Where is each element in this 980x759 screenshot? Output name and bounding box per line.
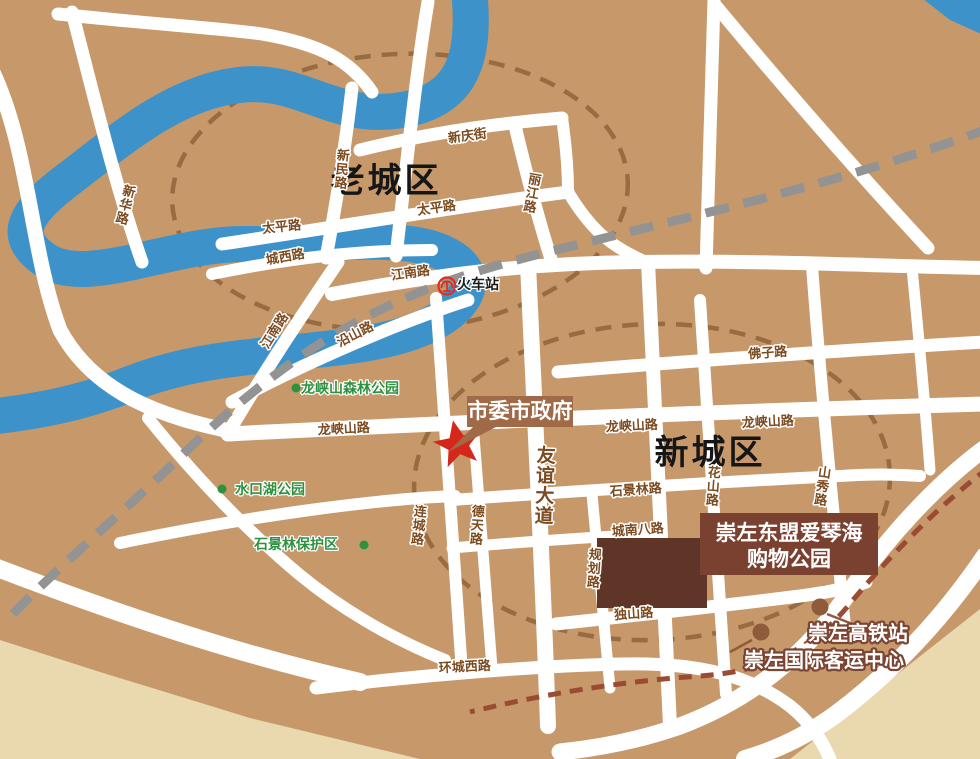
shopping-park-building: [597, 538, 707, 608]
road-label-dushan: 独山路: [614, 605, 655, 624]
shopping-park-callout: 崇左东盟爱琴海 购物公园: [700, 513, 878, 575]
road-label-longxiashan-west: 龙峡山路: [317, 420, 371, 439]
park-dot-shijinglin-reserve: [360, 541, 369, 550]
train-station-label: 火车站: [457, 276, 499, 293]
road-northeast-vertical: [706, 0, 714, 268]
park-dot-longxiashan-forest: [292, 384, 301, 393]
government-label: 市委市政府: [468, 399, 573, 423]
city-map: 市委市政府 崇左东盟爱琴海 购物公园 老城区 新城区 龙峡山森林公园 水口湖公园…: [0, 0, 980, 759]
park-label-longxiashan-forest: 龙峡山森林公园: [300, 380, 399, 397]
park-label-shijinglin-reserve: 石景林保护区: [253, 536, 338, 553]
road-label-longxiashan-east: 龙峡山路: [741, 413, 795, 432]
shopping-park-label-line2: 购物公园: [747, 547, 831, 571]
road-label-fozi: 佛子路: [747, 344, 789, 363]
passenger-center-label: 崇左国际客运中心: [744, 648, 904, 672]
park-label-shuikouhu: 水口湖公园: [235, 481, 305, 498]
hsr-station-marker: [812, 599, 829, 616]
road-label-longxiashan-center: 龙峡山路: [605, 417, 659, 436]
shopping-park-label-line1: 崇左东盟爱琴海: [716, 521, 863, 545]
passenger-center-marker: [753, 624, 770, 641]
road-label-youyi-avenue: 友谊大道: [534, 444, 556, 528]
hsr-station-label: 崇左高铁站: [808, 621, 908, 645]
road-label-huancheng-west: 环城西路: [438, 658, 492, 677]
park-dot-shuikouhu: [218, 485, 227, 494]
